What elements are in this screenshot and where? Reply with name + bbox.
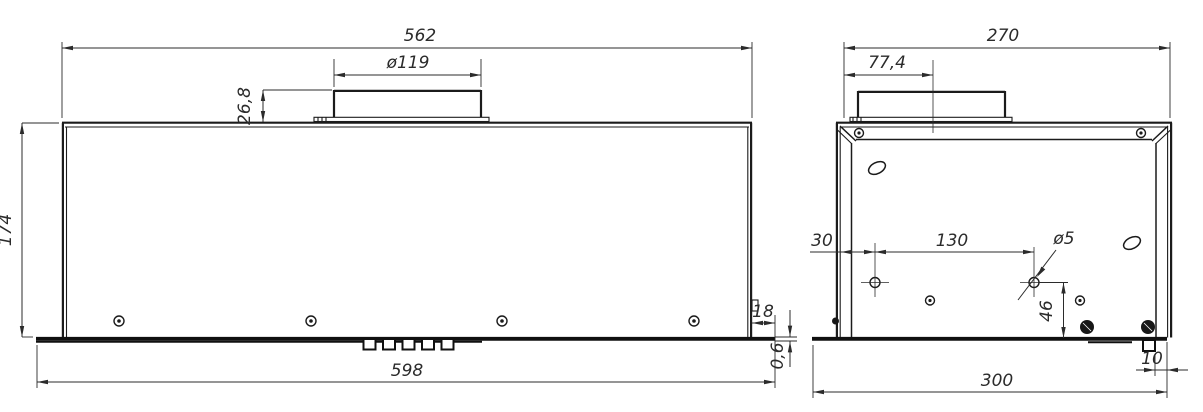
dim-label-130: 130: [936, 231, 968, 251]
dim-front-duct-diameter: ø119: [334, 53, 481, 87]
side-duct-outlet: [850, 91, 1012, 122]
dim-front-base-overhang: 18: [752, 302, 775, 323]
side-mounting-hole-left: [861, 243, 889, 297]
dim-label-18: 18: [752, 302, 774, 322]
side-bottom-plate: [812, 339, 1167, 351]
technical-drawing: 562 ø119 26,8 174 598: [0, 0, 1203, 412]
dim-label-174: 174: [0, 214, 16, 246]
dim-label-30: 30: [811, 231, 833, 251]
dim-side-hole-diameter: ø5: [1018, 229, 1075, 300]
dim-label-duct-diameter: ø119: [386, 53, 430, 73]
leader-arrowhead: [1035, 267, 1045, 279]
dim-label-10: 10: [1141, 349, 1163, 369]
dim-label-46: 46: [1037, 300, 1057, 322]
dim-label-duct-height: 26,8: [235, 87, 255, 125]
front-bottom-plate: [36, 339, 775, 350]
dim-side-hole-spacing: 130: [875, 231, 1034, 252]
dim-front-base-width: 598: [37, 315, 775, 388]
side-slot-upper: [866, 159, 887, 177]
drawing-sheet: 562 ø119 26,8 174 598: [0, 0, 1203, 412]
front-plate-tab: [422, 339, 434, 350]
side-body-outline: [832, 123, 1172, 338]
front-plate-tab: [383, 339, 395, 350]
front-view: 562 ø119 26,8 174 598: [0, 26, 797, 388]
dim-label-270: 270: [987, 26, 1019, 46]
dim-side-hole-offset: 30: [810, 231, 875, 252]
front-screws: [114, 316, 699, 326]
front-plate-tab: [403, 339, 415, 350]
dim-side-rear-tab: 10: [1136, 342, 1188, 398]
dim-label-300: 300: [981, 371, 1013, 391]
front-duct-flange: [314, 117, 489, 121]
side-duct-flange: [850, 117, 1012, 121]
dim-side-base-depth: 300: [813, 345, 1167, 398]
dim-front-body-height: 174: [0, 123, 59, 337]
dim-label-598: 598: [391, 361, 424, 381]
side-wall-pin: [832, 318, 839, 325]
front-body-outline: [62, 123, 758, 338]
dim-side-hole-bottom-offset: 46: [1037, 283, 1068, 339]
side-mounting-hole-right: [1020, 247, 1048, 297]
dim-label-562: 562: [404, 26, 436, 46]
side-view: 270 77,4 30 130 ø5 46: [810, 26, 1188, 398]
front-plate-tab: [364, 339, 376, 350]
front-plate-tab: [442, 339, 454, 350]
side-features: [855, 129, 1156, 335]
dim-label-0-6: 0,6: [768, 342, 788, 369]
dim-label-77-4: 77,4: [868, 53, 906, 73]
dim-label-hole-diameter: ø5: [1052, 229, 1074, 249]
side-slot-lower: [1121, 234, 1142, 252]
front-duct-outlet: [314, 90, 489, 122]
